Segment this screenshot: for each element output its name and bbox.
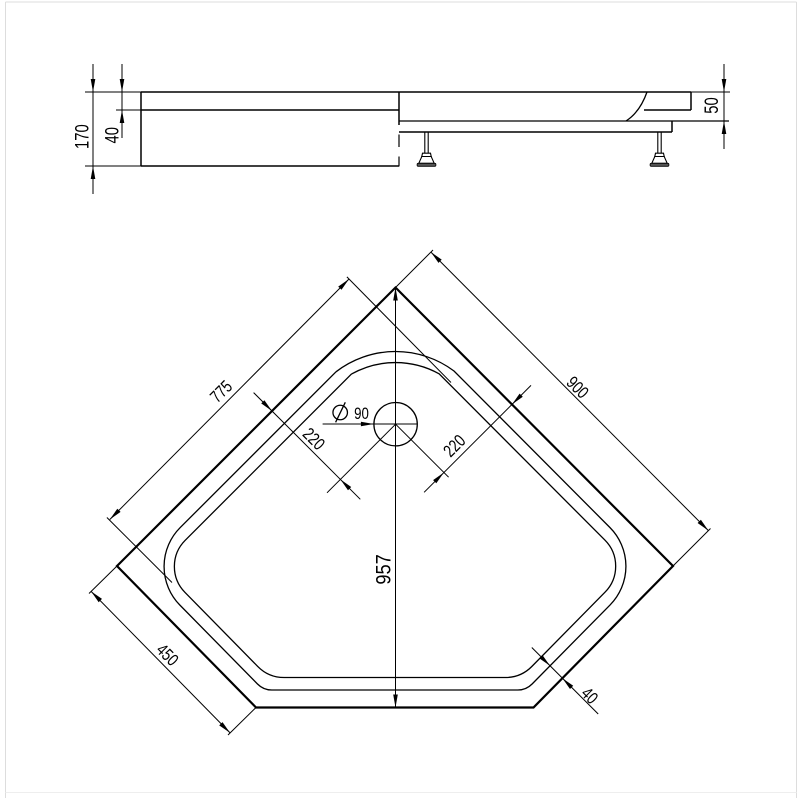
svg-text:50: 50 [701,97,722,113]
svg-text:40: 40 [102,127,123,143]
svg-text:170: 170 [72,124,93,149]
svg-text:957: 957 [372,554,395,584]
svg-text:90: 90 [354,405,369,424]
